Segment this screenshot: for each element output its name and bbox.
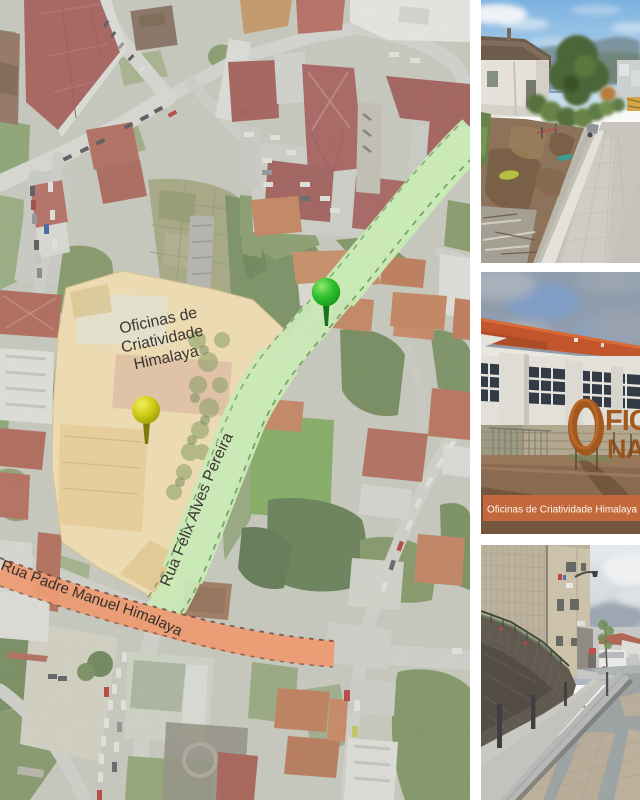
svg-text:NAS: NAS [607,434,640,464]
svg-text:Oficinas de Criatividade Himal: Oficinas de Criatividade Himalaya [487,505,638,516]
svg-text:FIC: FIC [605,405,640,437]
